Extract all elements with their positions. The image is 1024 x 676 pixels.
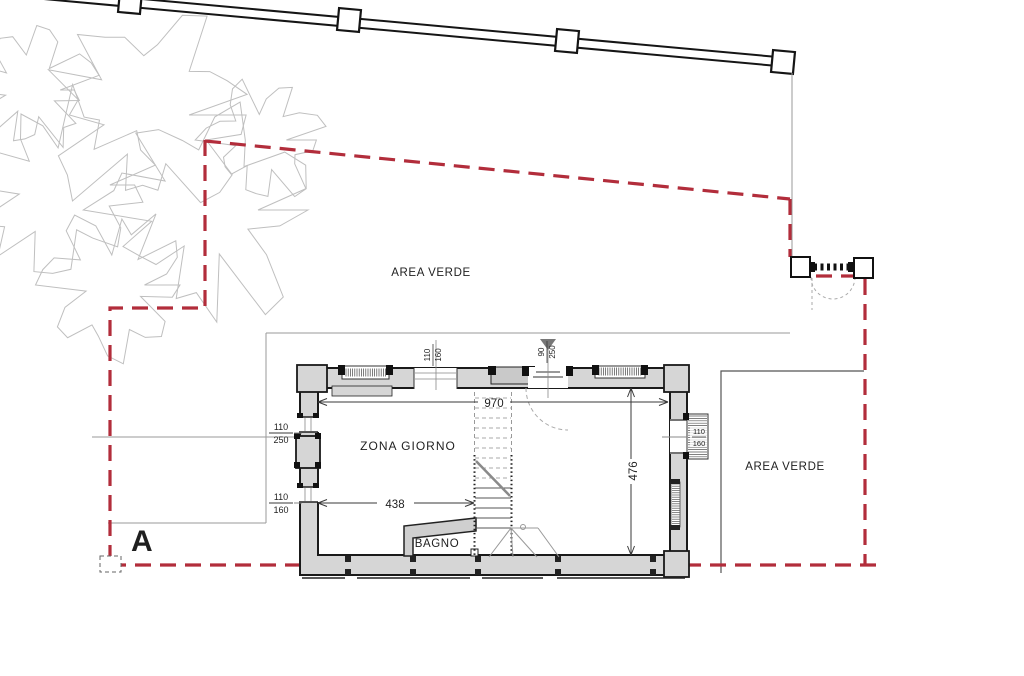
section-label: A [131,525,153,558]
entrance-door [522,366,573,430]
tree-canopy-blob [49,15,248,202]
dim-entrance-door: 90 250 [537,341,557,363]
bagno-partition [404,518,478,556]
dim-left-window-lower: 110 160 [269,492,293,515]
svg-text:110: 110 [274,422,288,432]
floor-plan-canvas: A [0,0,1024,676]
tree-canopy-blob [83,102,308,322]
gate-post-right [854,258,873,278]
gate-swing-arc [811,277,855,299]
wall-niche [332,386,392,396]
svg-text:160: 160 [693,439,706,448]
tree-canopy-blob [0,26,99,148]
gate-post-left [791,257,810,277]
label-bagno: BAGNO [415,538,460,550]
window-top-2 [414,368,457,389]
svg-text:110: 110 [423,348,432,361]
floor-plan-drawing: A [0,0,1024,676]
label-area-verde-right: AREA VERDE [745,461,825,473]
svg-text:110: 110 [274,492,288,502]
door-swing-arc [526,388,568,430]
stair-cut-line [476,461,510,496]
radiator-right-wall [670,479,680,530]
dim-partial-width: 438 [385,499,404,511]
winder-steps [489,525,559,558]
dim-left-window-upper: 110 250 [269,422,293,445]
tree-sketch [0,15,326,364]
window-top-1 [338,365,393,379]
property-boundary-red [110,140,880,565]
tree-canopy-blob [36,214,181,364]
svg-text:110: 110 [693,427,705,436]
staircase [475,392,560,557]
window-top-4 [592,365,648,378]
garden-gate [791,257,873,310]
label-area-verde-left: AREA VERDE [391,267,471,279]
tree-canopy-blob [0,85,155,274]
svg-text:160: 160 [434,348,443,362]
svg-text:90: 90 [537,347,546,356]
dim-top-window: 110 160 [423,344,443,366]
building [294,339,708,578]
dim-interior-depth: 476 [628,461,640,480]
svg-text:250: 250 [273,435,288,445]
svg-text:160: 160 [273,505,288,515]
dim-interior-width: 970 [484,398,503,410]
section-marker-box [100,556,121,572]
svg-text:250: 250 [548,345,557,359]
label-zona-giorno: ZONA GIORNO [360,439,456,453]
dim-right-window: 110 160 [690,426,707,448]
